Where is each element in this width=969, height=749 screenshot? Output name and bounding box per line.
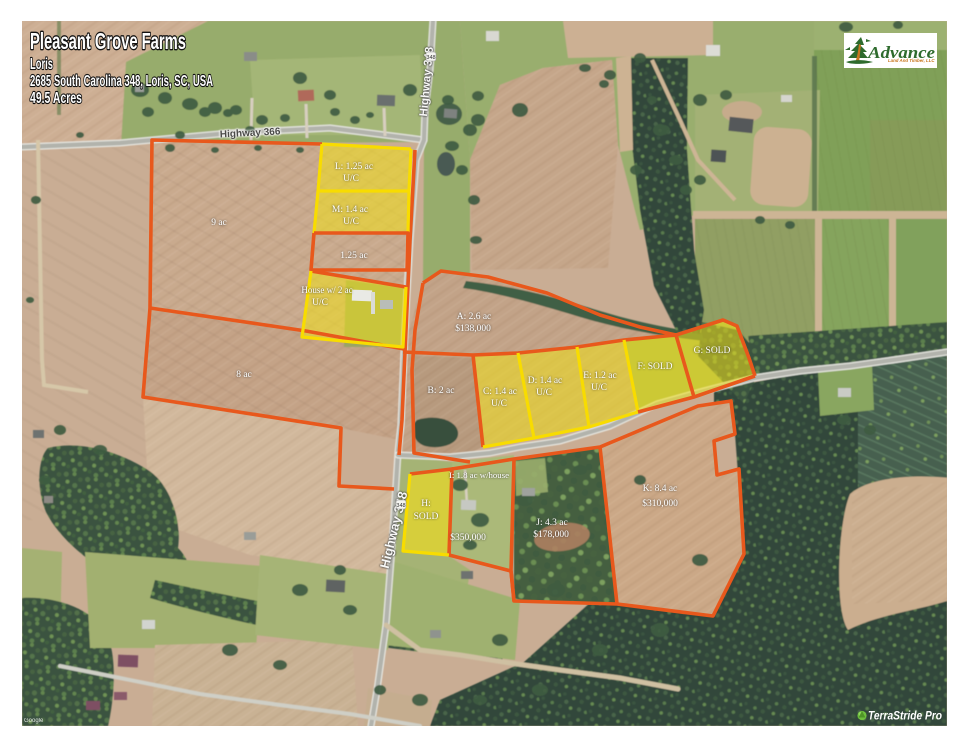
svg-text:Google: Google [24,718,44,724]
svg-text:$310,000: $310,000 [642,498,678,509]
svg-text:8 ac: 8 ac [236,370,252,380]
svg-text:B: 2 ac: B: 2 ac [428,386,455,396]
svg-text:1.25 ac: 1.25 ac [340,251,367,261]
svg-text:49.5 Acres: 49.5 Acres [30,90,82,107]
svg-text:U/C: U/C [536,388,552,398]
svg-text:9 ac: 9 ac [211,218,227,228]
svg-text:F: SOLD: F: SOLD [637,362,672,372]
svg-text:348: 348 [426,55,435,61]
svg-text:C: 1.4 ac: C: 1.4 ac [483,387,517,397]
svg-text:2685 South Carolina 348, Loris: 2685 South Carolina 348, Loris, SC, USA [30,73,213,90]
svg-text:SOLD: SOLD [414,512,439,522]
svg-text:E: 1.2 ac: E: 1.2 ac [583,371,617,381]
svg-text:A: 2.6 ac: A: 2.6 ac [457,312,492,322]
svg-text:U/C: U/C [491,399,507,409]
svg-text:G: SOLD: G: SOLD [694,346,731,356]
svg-text:M: 1.4 ac: M: 1.4 ac [332,205,368,215]
svg-text:$350,000: $350,000 [450,532,486,543]
svg-text:Land And Timber, LLC: Land And Timber, LLC [888,58,935,63]
svg-text:L: 1.25 ac: L: 1.25 ac [335,162,373,172]
svg-text:H:: H: [421,499,431,509]
svg-text:House w/ 2 ac: House w/ 2 ac [301,285,352,295]
svg-text:U/C: U/C [343,174,359,184]
svg-text:I: 1.8 ac w/house: I: 1.8 ac w/house [449,470,509,480]
svg-text:U/C: U/C [312,298,328,308]
svg-text:D: 1.4 ac: D: 1.4 ac [528,376,563,386]
svg-text:K: 8.4 ac: K: 8.4 ac [643,484,678,494]
svg-text:$178,000: $178,000 [533,529,569,540]
svg-text:U/C: U/C [591,383,607,393]
svg-text:Pleasant Grove Farms: Pleasant Grove Farms [30,28,186,54]
svg-text:348: 348 [396,503,405,509]
svg-text:TerraStride Pro: TerraStride Pro [868,711,942,723]
svg-text:Loris: Loris [30,56,53,73]
svg-text:$138,000: $138,000 [455,323,491,334]
svg-text:J: 4.3 ac: J: 4.3 ac [536,518,567,528]
svg-text:U/C: U/C [343,217,359,227]
